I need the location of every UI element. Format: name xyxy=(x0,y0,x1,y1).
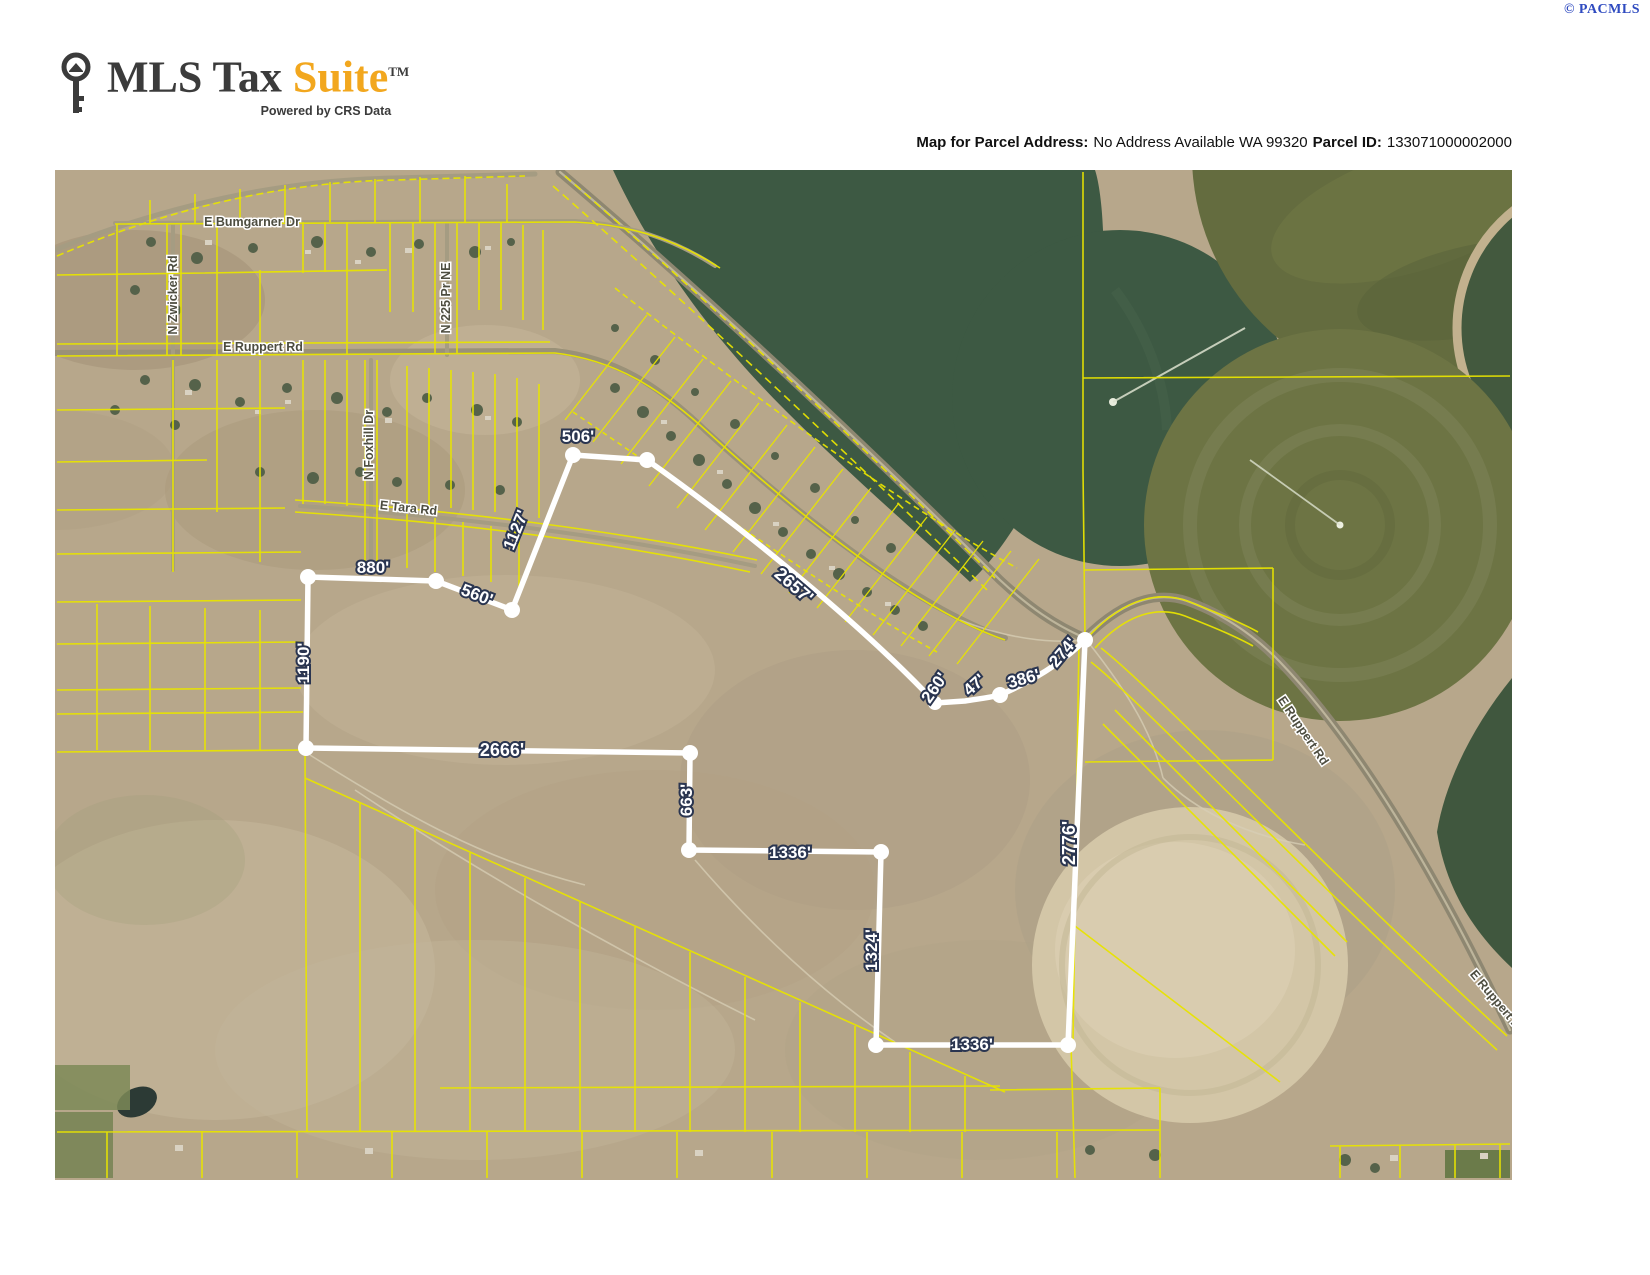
address-value: No Address Available WA 99320 xyxy=(1093,134,1307,151)
street-label-e-ruppert-rd: E Ruppert Rd xyxy=(223,340,303,354)
dim-1336-lower: 1336' xyxy=(951,1035,993,1054)
dim-2666: 2666' xyxy=(480,740,524,760)
parcel-map: E Bumgarner Dr N Zwicker Rd N 225 Pr NE … xyxy=(55,170,1512,1180)
mls-tax-suite-logo: MLS Tax SuiteTM Powered by CRS Data xyxy=(55,48,409,121)
dim-1336-upper: 1336' xyxy=(769,843,811,862)
parcel-id-label: Parcel ID: xyxy=(1313,134,1382,151)
page: { "attribution": { "copyright": "© PACML… xyxy=(0,0,1650,1275)
key-icon xyxy=(55,52,97,121)
parcel-id-value: 133071000002000 xyxy=(1387,134,1512,151)
logo-title: MLS Tax SuiteTM xyxy=(107,48,409,102)
dim-1324: 1324' xyxy=(862,929,881,971)
dim-663: 663' xyxy=(677,784,696,816)
address-label: Map for Parcel Address: xyxy=(916,134,1088,151)
dim-506: 506' xyxy=(562,427,594,446)
dim-2776: 2776' xyxy=(1059,821,1079,865)
street-label-n-zwicker-rd: N Zwicker Rd xyxy=(166,255,180,334)
street-label-e-bumgarner-dr: E Bumgarner Dr xyxy=(204,215,300,229)
street-label-n-foxhill-dr: N Foxhill Dr xyxy=(362,410,376,480)
logo-tagline: Powered by CRS Data xyxy=(261,104,392,118)
parcel-header: Map for Parcel Address:No Address Availa… xyxy=(916,134,1512,151)
aerial-map-image: E Bumgarner Dr N Zwicker Rd N 225 Pr NE … xyxy=(55,170,1512,1180)
trademark: TM xyxy=(388,64,409,79)
dim-880: 880' xyxy=(357,558,389,577)
pacmls-copyright: © PACMLS xyxy=(1564,2,1640,18)
dim-1190: 1190' xyxy=(294,643,313,684)
street-label-n-225-pr-ne: N 225 Pr NE xyxy=(439,263,453,334)
